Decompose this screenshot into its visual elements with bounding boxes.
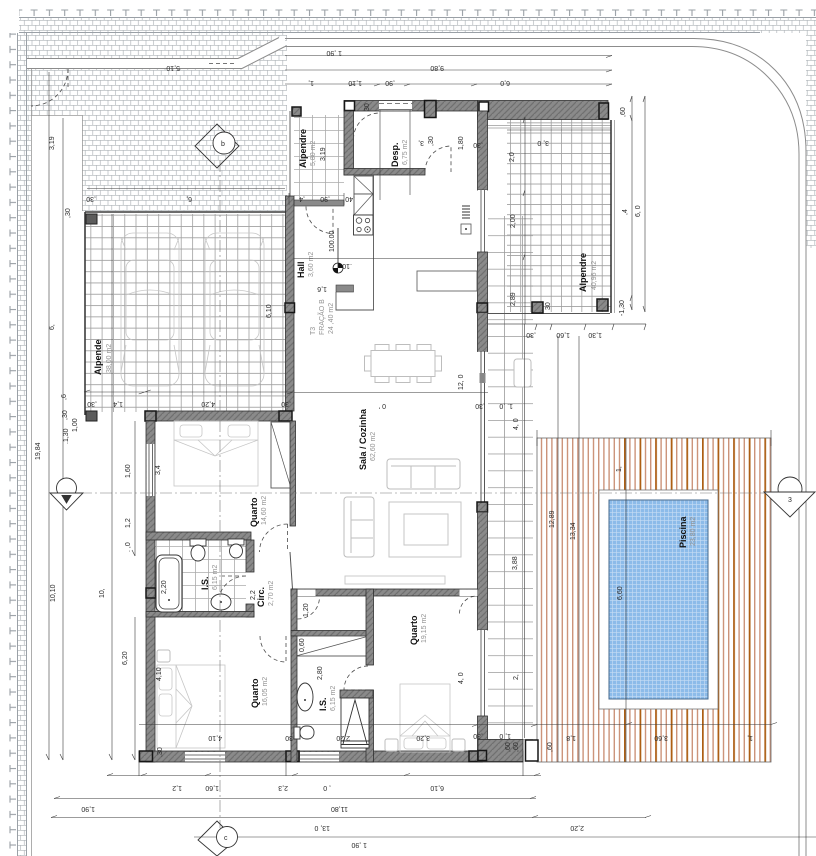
svg-text:1,8: 1,8 [566, 734, 576, 741]
svg-text:2,20: 2,20 [336, 734, 350, 741]
svg-text:2,3: 2,3 [278, 784, 288, 791]
svg-text:2,20: 2,20 [570, 824, 584, 831]
svg-text:,40: ,40 [345, 195, 355, 202]
svg-text:6,15 m2: 6,15 m2 [212, 565, 219, 590]
svg-text:4,10: 4,10 [208, 734, 222, 741]
svg-text:1,90: 1,90 [81, 805, 95, 812]
svg-text:5,80 m2: 5,80 m2 [310, 141, 317, 166]
svg-text:Alpendre: Alpendre [578, 253, 588, 292]
svg-text:Piscina: Piscina [678, 515, 688, 548]
svg-text:,60: ,60 [620, 107, 627, 117]
svg-text:Quarto: Quarto [249, 497, 259, 527]
svg-text:1,60: 1,60 [556, 331, 570, 338]
svg-text:3,: 3, [418, 139, 424, 146]
svg-text:3,19: 3,19 [320, 147, 327, 161]
svg-text:6,20: 6,20 [122, 651, 129, 665]
svg-text:Hall: Hall [296, 261, 306, 278]
svg-text:1. ,0: 1. ,0 [499, 402, 513, 409]
svg-text:30: 30 [545, 302, 552, 310]
svg-text:13, 0: 13, 0 [314, 824, 330, 831]
svg-text:3, 0: 3, 0 [537, 139, 549, 146]
svg-text:,30: ,30 [87, 400, 97, 407]
svg-text:19,84: 19,84 [35, 442, 42, 460]
svg-text:1,30: 1,30 [588, 331, 602, 338]
svg-text:1,6: 1,6 [317, 285, 327, 292]
svg-text:,60: ,60 [513, 742, 520, 752]
svg-text:19,15 m2: 19,15 m2 [421, 614, 428, 643]
svg-text:c: c [224, 835, 228, 842]
svg-text:10,10: 10,10 [50, 584, 57, 602]
svg-text:4,20: 4,20 [201, 400, 215, 407]
svg-text:,30: ,30 [65, 208, 72, 218]
svg-text:2,00: 2,00 [510, 214, 517, 228]
svg-text:0 ': 0 ' [379, 402, 386, 409]
svg-text:Quarto: Quarto [409, 615, 419, 645]
svg-text:,60: ,60 [505, 742, 512, 752]
svg-text:1,: 1, [616, 466, 623, 472]
svg-text:16,05 m2: 16,05 m2 [262, 677, 269, 706]
svg-text:2,89: 2,89 [510, 292, 517, 306]
svg-text:,90: ,90 [385, 79, 395, 86]
svg-text:40,96 m2: 40,96 m2 [591, 261, 598, 290]
svg-text:1,10: 1,10 [348, 79, 362, 86]
svg-text:3,88: 3,88 [512, 556, 519, 570]
svg-text:1,: 1, [308, 79, 314, 86]
svg-text:Quarto: Quarto [250, 678, 260, 708]
svg-text:3,4: 3,4 [155, 465, 162, 475]
svg-text:6,15 m2: 6,15 m2 [330, 686, 337, 711]
svg-text:6,0: 6,0 [500, 79, 510, 86]
svg-text:1,: 1, [747, 734, 753, 741]
svg-text:2,20: 2,20 [161, 580, 168, 594]
svg-text:,30: ,30 [475, 402, 485, 409]
svg-text:,30: ,30 [62, 410, 69, 420]
svg-text:30: 30 [364, 103, 371, 111]
svg-text:6,: 6, [49, 324, 56, 330]
svg-text:,4: ,4 [299, 195, 305, 202]
svg-text:12,89: 12,89 [549, 510, 556, 528]
svg-text:,90: ,90 [320, 195, 330, 202]
svg-text:I.S.: I.S. [318, 697, 328, 711]
svg-text:,30: ,30 [285, 734, 295, 741]
svg-text:5,10: 5,10 [166, 64, 180, 71]
svg-text:,4: ,4 [622, 209, 629, 215]
svg-text:2,70 m2: 2,70 m2 [268, 581, 275, 606]
svg-text:,30: ,30 [157, 747, 164, 757]
svg-text:0,60: 0,60 [299, 638, 306, 652]
svg-text:-1,30: -1,30 [619, 300, 626, 316]
svg-text:11,80: 11,80 [331, 805, 348, 812]
svg-text:I.S.: I.S. [200, 576, 210, 590]
svg-text:10,: 10, [99, 588, 106, 598]
svg-text:,30: ,30 [86, 195, 96, 202]
svg-text:3: 3 [788, 497, 792, 504]
svg-text:,30: ,30 [281, 400, 291, 407]
svg-text:1,20: 1,20 [303, 603, 310, 617]
svg-text:1 ,90: 1 ,90 [326, 49, 342, 56]
svg-text:4,10: 4,10 [156, 667, 163, 681]
svg-text:2,0: 2,0 [509, 152, 516, 162]
svg-text:6,60: 6,60 [617, 586, 624, 600]
svg-text:1,2: 1,2 [125, 518, 132, 528]
svg-text:24 ,40 m2: 24 ,40 m2 [328, 303, 335, 334]
svg-text:Desp.: Desp. [390, 142, 400, 167]
svg-text:1,60: 1,60 [125, 464, 132, 478]
svg-text:3,60 m2: 3,60 m2 [308, 252, 315, 277]
svg-text:23,80 m2: 23,80 m2 [690, 517, 697, 546]
svg-text:1,60: 1,60 [205, 784, 219, 791]
svg-text:3,60: 3,60 [654, 734, 668, 741]
svg-text:, 0: , 0 [323, 784, 331, 791]
svg-text:,30: ,30 [473, 141, 483, 148]
svg-text:12, 0: 12, 0 [458, 374, 465, 390]
svg-text:2,80: 2,80 [317, 666, 324, 680]
svg-text:,30: ,30 [526, 331, 536, 338]
svg-text:3,19: 3,19 [49, 136, 56, 150]
svg-text:1, 0: 1, 0 [499, 732, 511, 739]
svg-text:4, 0: 4, 0 [458, 672, 465, 684]
svg-text:1,2: 1,2 [172, 784, 182, 791]
svg-text:,6: ,6 [61, 394, 68, 400]
svg-text:6,10: 6,10 [266, 304, 273, 318]
svg-text:.1,30: .1,30 [63, 428, 70, 444]
svg-text:62,60 m2: 62,60 m2 [370, 432, 377, 461]
svg-text:1,4: 1,4 [113, 400, 123, 407]
svg-text:Sala / Cozinha: Sala / Cozinha [358, 408, 368, 470]
svg-text:2,2: 2,2 [250, 590, 257, 600]
svg-text:1,00: 1,00 [72, 418, 79, 432]
svg-text:1 ,90: 1 ,90 [351, 841, 367, 848]
svg-text:,30: ,30 [473, 732, 483, 739]
svg-text:1,80: 1,80 [458, 136, 465, 150]
svg-text:6,10: 6,10 [430, 784, 444, 791]
svg-text:Circ.: Circ. [256, 587, 266, 607]
svg-text:100.00: 100.00 [329, 230, 336, 252]
svg-text:b: b [221, 141, 225, 148]
svg-text:6,: 6, [186, 195, 192, 202]
svg-text:6, 0: 6, 0 [635, 205, 642, 217]
svg-text:14,60 m2: 14,60 m2 [261, 496, 268, 525]
svg-text:4, 0: 4, 0 [513, 418, 520, 430]
svg-text:.10: .10 [342, 262, 352, 269]
svg-text:3,20: 3,20 [416, 734, 430, 741]
svg-text:. ,0: . ,0 [125, 542, 132, 552]
svg-text:FRAÇÃO B: FRAÇÃO B [317, 299, 326, 335]
svg-text:Alpendre: Alpendre [298, 129, 308, 168]
svg-text:9,80: 9,80 [430, 64, 444, 71]
svg-text:13,34: 13,34 [570, 522, 577, 540]
svg-text:,60: ,60 [547, 742, 554, 752]
svg-text:,30: ,30 [428, 136, 435, 146]
svg-text:2,: 2, [513, 674, 520, 680]
svg-text:T3: T3 [310, 327, 317, 335]
svg-text:Alpende: Alpende [93, 339, 103, 375]
svg-text:6,75 m2: 6,75 m2 [402, 140, 409, 165]
